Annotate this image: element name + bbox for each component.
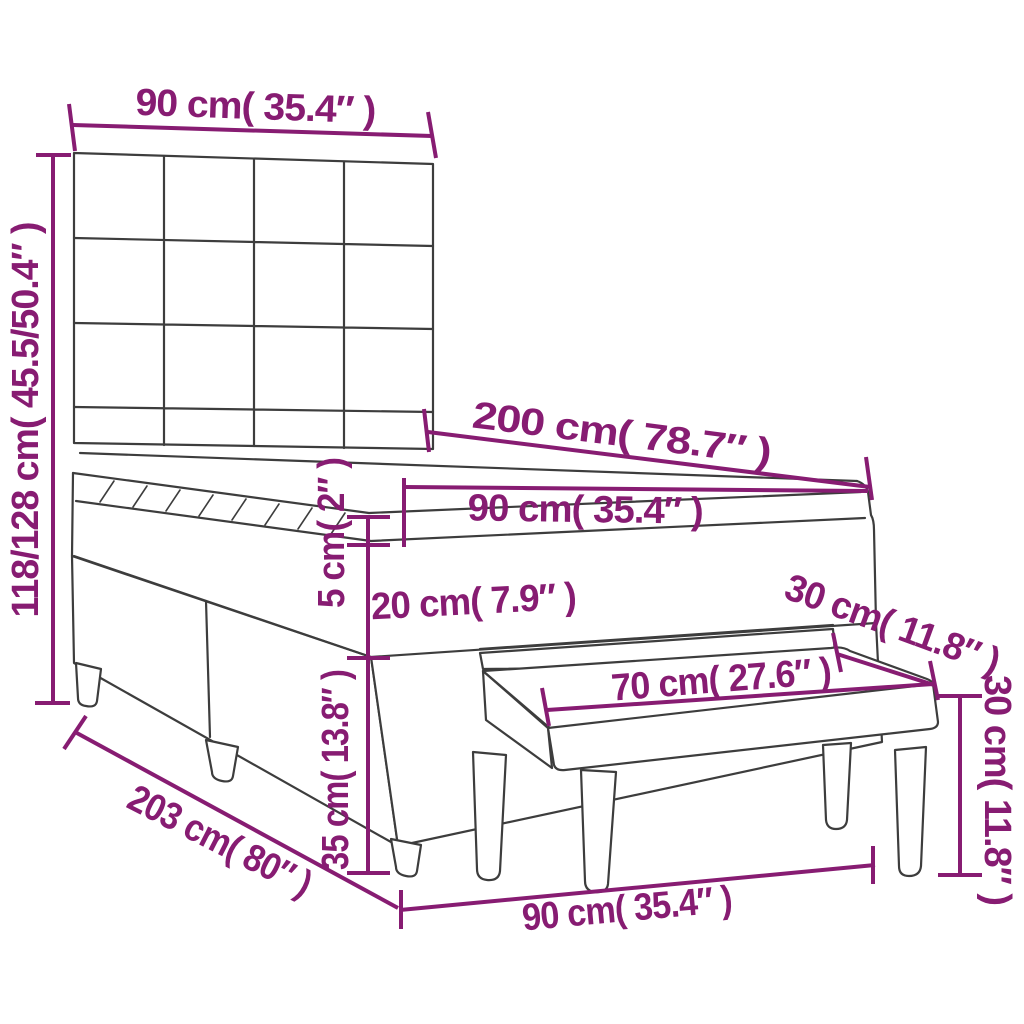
headboard [74, 153, 433, 449]
label-base-height: 35 cm( 13.8″ ) [315, 670, 357, 870]
label-bed-height: 118/128 cm( 45.5/50.4″ ) [5, 223, 47, 618]
label-topper-thickness: 5 cm( 2″ ) [311, 458, 353, 608]
bench-leg [581, 770, 616, 892]
deck-left-cap [72, 473, 73, 556]
dim-bed-length-tick [64, 716, 86, 749]
bench-leg [895, 747, 926, 876]
label-mattress-width: 90 cm( 35.4″ ) [467, 487, 703, 532]
label-mattress-thickness: 20 cm( 7.9″ ) [370, 576, 577, 629]
label-mattress-length: 200 cm( 78.7″ ) [470, 394, 773, 473]
bed-leg [391, 839, 421, 876]
bench-leg [823, 743, 851, 829]
bed-leg [76, 663, 101, 706]
topper-hatch-marks [100, 481, 345, 534]
bench-leg [473, 752, 506, 880]
bed-leg [206, 740, 238, 781]
label-bed-length: 203 cm( 80″ ) [121, 777, 318, 905]
label-bed-width: 90 cm( 35.4″ ) [520, 879, 733, 940]
label-bench-height: 30 cm( 11.8″ ) [976, 675, 1018, 905]
label-headboard-width: 90 cm( 35.4″ ) [135, 82, 376, 132]
dimension-diagram: 90 cm( 35.4″ ) 118/128 cm( 45.5/50.4″ ) … [0, 0, 1024, 1024]
